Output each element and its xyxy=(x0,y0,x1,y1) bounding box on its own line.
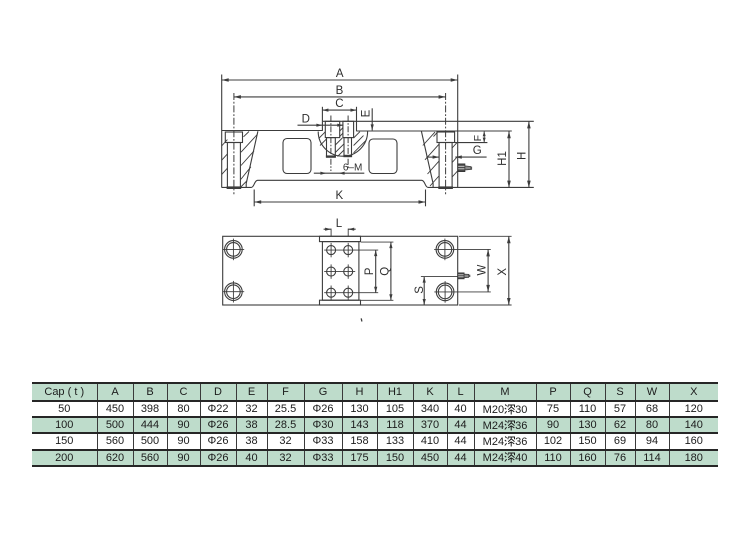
svg-text:6–M: 6–M xyxy=(343,163,362,174)
svg-text:P: P xyxy=(364,267,376,275)
svg-text:K: K xyxy=(335,190,343,202)
svg-text:W: W xyxy=(476,264,488,275)
svg-text:F: F xyxy=(472,135,484,141)
svg-text:S: S xyxy=(414,286,426,294)
svg-text:B: B xyxy=(336,85,344,97)
svg-text:L: L xyxy=(336,218,343,230)
svg-text:C: C xyxy=(335,98,343,110)
svg-text:H: H xyxy=(517,152,529,160)
svg-text:X: X xyxy=(497,268,509,276)
svg-text:H1: H1 xyxy=(497,151,509,166)
svg-text:D: D xyxy=(302,113,310,125)
svg-text:A: A xyxy=(336,68,344,80)
svg-text:G: G xyxy=(473,145,482,157)
svg-text:Q: Q xyxy=(380,267,392,276)
svg-text:E: E xyxy=(360,109,372,117)
